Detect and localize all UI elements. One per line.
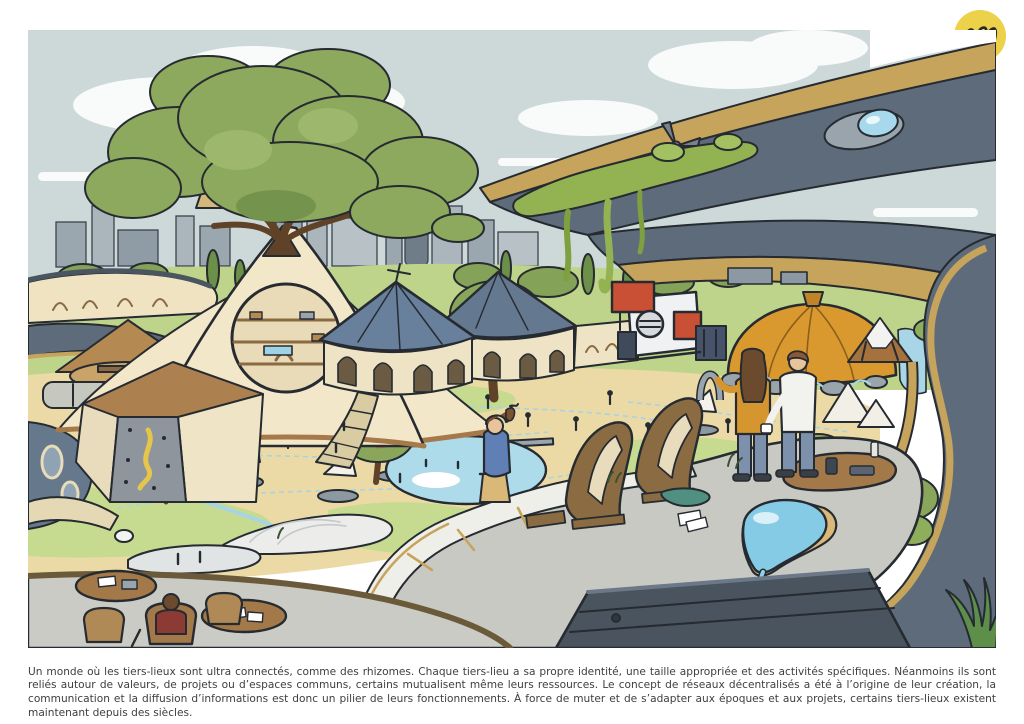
tiers-lieux-illustration [28, 30, 996, 648]
poster-page: { "branding": { "cc_badge": { "symbol": … [0, 0, 1024, 724]
caption-text: Un monde où les tiers-lieux sont ultra c… [28, 666, 996, 721]
